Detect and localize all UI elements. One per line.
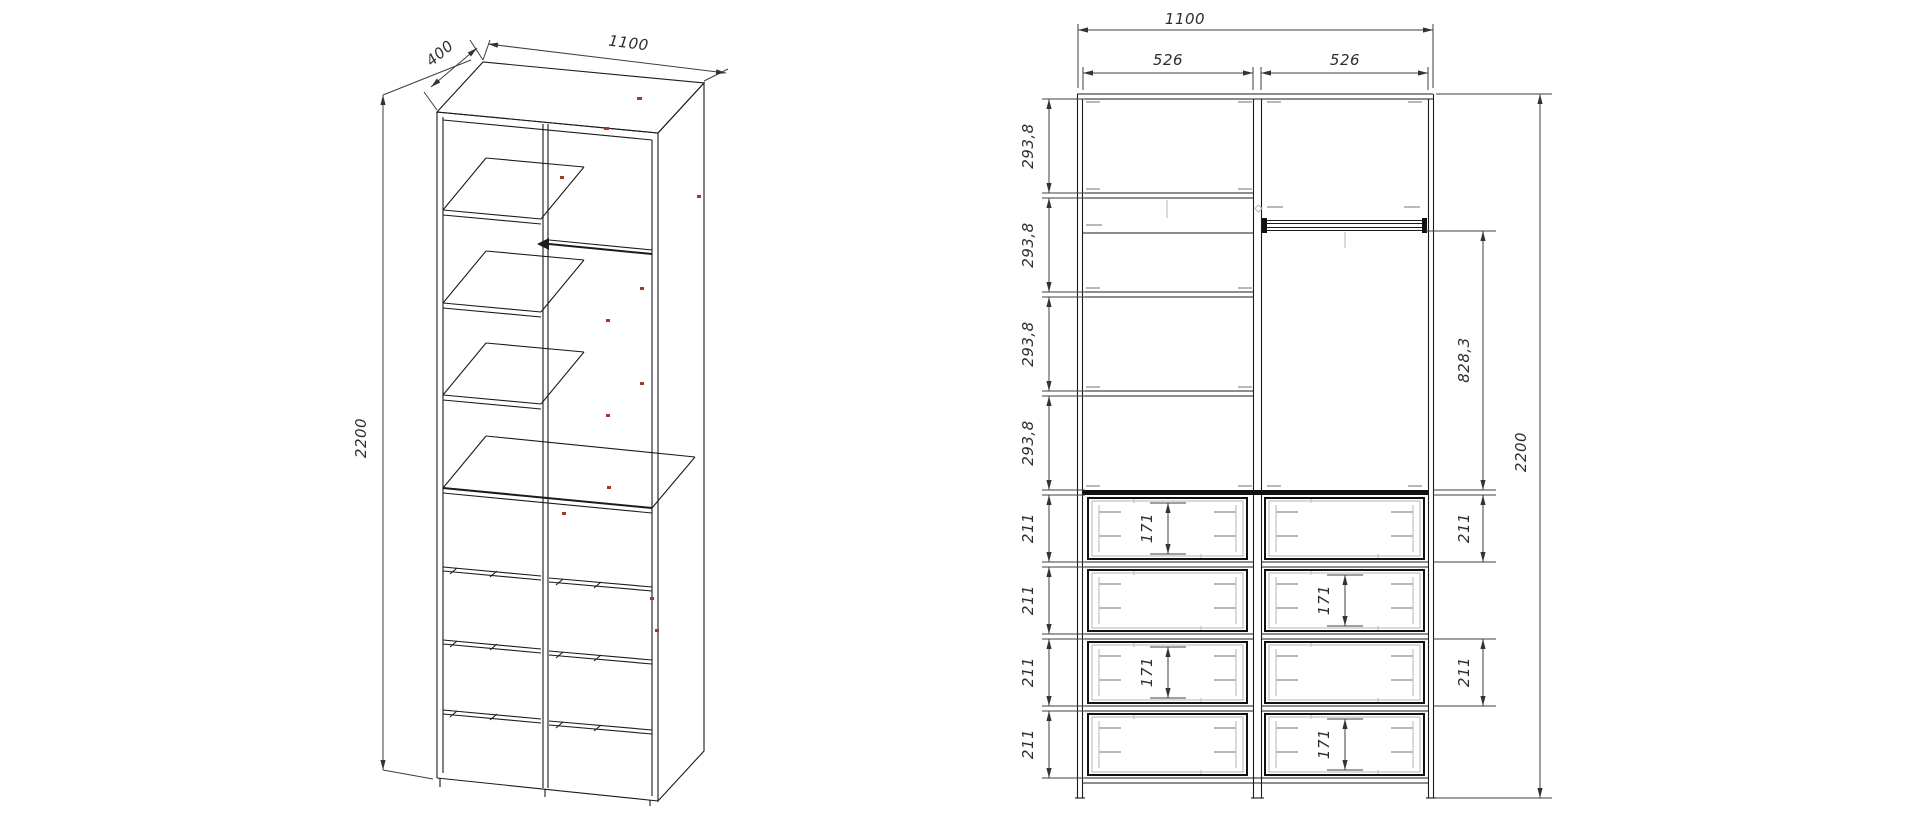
shelf [443, 251, 584, 317]
dim-shelf-opening-3-label: 293,8 [1019, 321, 1037, 366]
drawer [1265, 642, 1424, 703]
dim-drawer-inner-2-label: 171 [1315, 585, 1333, 615]
carcass [1075, 94, 1436, 798]
dim-shelf-opening-1-label: 293,8 [1019, 123, 1037, 168]
drawer-rails-left [443, 567, 541, 723]
dim-overall-height-label: 2200 [1512, 432, 1530, 472]
dim-drawer-opening-1-label: 211 [1019, 513, 1037, 543]
perspective-view: 400 1100 2200 [352, 32, 728, 806]
dim-height-label: 2200 [352, 418, 370, 458]
dim-right-drawer-3-label: 211 [1455, 657, 1473, 687]
feet [440, 778, 650, 806]
dim-hanging-space-label: 828,3 [1455, 337, 1473, 382]
hanging-rod [1262, 218, 1427, 233]
dim-right-column-width-label: 526 [1330, 51, 1360, 69]
drawer-inner-dimensions: 171 171 171 171 [1138, 503, 1363, 770]
dim-drawer-inner-3-label: 171 [1138, 657, 1156, 687]
dim-right-drawer-1-label: 211 [1455, 513, 1473, 543]
top-dimensions: 1100 526 526 [1078, 10, 1433, 90]
dim-left-column-width-label: 526 [1153, 51, 1183, 69]
dim-drawer-opening-2-label: 211 [1019, 585, 1037, 615]
wardrobe-drawing: 400 1100 2200 [0, 0, 1920, 834]
assembly-marks [560, 97, 701, 632]
drawer-block-top [443, 436, 695, 513]
drawer-dividers [1083, 562, 1428, 711]
right-side-panel [658, 83, 704, 801]
right-dimension-chain: 828,3 211 211 2200 [1426, 94, 1552, 798]
drawer-rails-right [549, 578, 652, 734]
drawer [1265, 498, 1424, 559]
dim-overall-width-label: 1100 [1165, 10, 1205, 28]
perspective-dimensions: 400 1100 2200 [352, 32, 728, 779]
dim-drawer-opening-4-label: 211 [1019, 729, 1037, 759]
drawer [1088, 570, 1247, 631]
shelf [443, 158, 584, 224]
drawing-canvas: 400 1100 2200 [0, 0, 1920, 834]
hanging-rod [537, 238, 652, 254]
drawer [1088, 714, 1247, 775]
dim-drawer-inner-4-label: 171 [1315, 729, 1333, 759]
dim-depth-label: 400 [422, 37, 457, 70]
dim-shelf-opening-2-label: 293,8 [1019, 222, 1037, 267]
dim-width-label: 1100 [608, 32, 650, 55]
shelf [443, 343, 584, 409]
dim-shelf-opening-4-label: 293,8 [1019, 420, 1037, 465]
left-dimension-chain: 293,8 293,8 293,8 293,8 211 211 211 211 [1019, 99, 1085, 778]
dim-drawer-opening-3-label: 211 [1019, 657, 1037, 687]
shelves [1083, 193, 1253, 396]
dim-drawer-inner-1-label: 171 [1138, 513, 1156, 543]
top-panel-face [437, 62, 704, 133]
front-elevation-view: 1100 526 526 293,8 293,8 293,8 [1019, 10, 1552, 798]
